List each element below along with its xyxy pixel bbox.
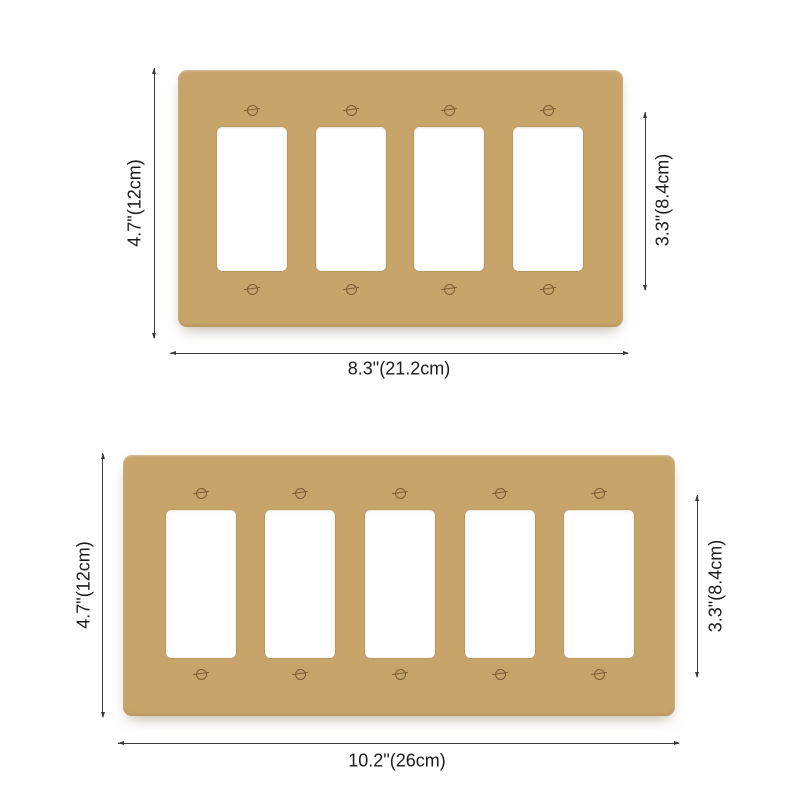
gang-opening xyxy=(316,127,386,271)
wall-plate-4-gang xyxy=(178,70,623,327)
opening-height-dimension-label: 3.3"(8.4cm) xyxy=(653,154,674,246)
gang-opening xyxy=(365,510,435,658)
screw-icon xyxy=(344,282,358,296)
gang-opening xyxy=(465,510,535,658)
gang-opening xyxy=(265,510,335,658)
screw-icon xyxy=(592,667,606,681)
screw-slot xyxy=(392,491,408,494)
gang-opening xyxy=(166,510,236,658)
screw-slot xyxy=(193,491,209,494)
screw-icon xyxy=(541,103,555,117)
screw-slot xyxy=(492,491,508,494)
screw-icon xyxy=(293,486,307,500)
plate-width-dimension-label: 10.2"(26cm) xyxy=(348,751,445,772)
plate-width-dimension-label: 8.3"(21.2cm) xyxy=(348,359,450,380)
screw-icon xyxy=(442,103,456,117)
screw-slot xyxy=(540,108,556,111)
screw-icon xyxy=(541,282,555,296)
opening-height-dimension-line xyxy=(697,495,698,677)
screw-slot xyxy=(292,672,308,675)
screw-icon xyxy=(393,486,407,500)
plate-height-dimension-line xyxy=(102,453,103,717)
screw-icon xyxy=(194,486,208,500)
screw-slot xyxy=(591,491,607,494)
product-dimension-diagram: 4.7"(12cm) 3.3"(8.4cm) 8.3"(21.2cm) 4.7"… xyxy=(0,0,800,800)
opening-height-dimension-line xyxy=(645,112,646,290)
screw-icon xyxy=(493,667,507,681)
screw-slot xyxy=(244,108,260,111)
plate-height-dimension-label: 4.7"(12cm) xyxy=(125,159,146,246)
screw-slot xyxy=(292,491,308,494)
plate-width-dimension-line xyxy=(170,353,628,354)
gang-opening xyxy=(513,127,583,271)
screw-icon xyxy=(245,282,259,296)
gang-opening xyxy=(217,127,287,271)
screw-icon xyxy=(344,103,358,117)
screw-slot xyxy=(591,672,607,675)
screw-slot xyxy=(492,672,508,675)
screw-icon xyxy=(442,282,456,296)
wall-plate-5-gang xyxy=(123,455,675,716)
gang-opening xyxy=(564,510,634,658)
screw-slot xyxy=(343,108,359,111)
plate-height-dimension-line xyxy=(154,68,155,338)
screw-slot xyxy=(193,672,209,675)
screw-icon xyxy=(293,667,307,681)
screw-slot xyxy=(441,108,457,111)
screw-slot xyxy=(392,672,408,675)
screw-slot xyxy=(540,287,556,290)
screw-icon xyxy=(592,486,606,500)
opening-height-dimension-label: 3.3"(8.4cm) xyxy=(706,540,727,632)
screw-slot xyxy=(343,287,359,290)
plate-height-dimension-label: 4.7"(12cm) xyxy=(74,541,95,628)
screw-icon xyxy=(245,103,259,117)
screw-icon xyxy=(194,667,208,681)
screw-icon xyxy=(493,486,507,500)
screw-slot xyxy=(441,287,457,290)
plate-width-dimension-line xyxy=(118,743,679,744)
screw-icon xyxy=(393,667,407,681)
screw-slot xyxy=(244,287,260,290)
gang-opening xyxy=(414,127,484,271)
